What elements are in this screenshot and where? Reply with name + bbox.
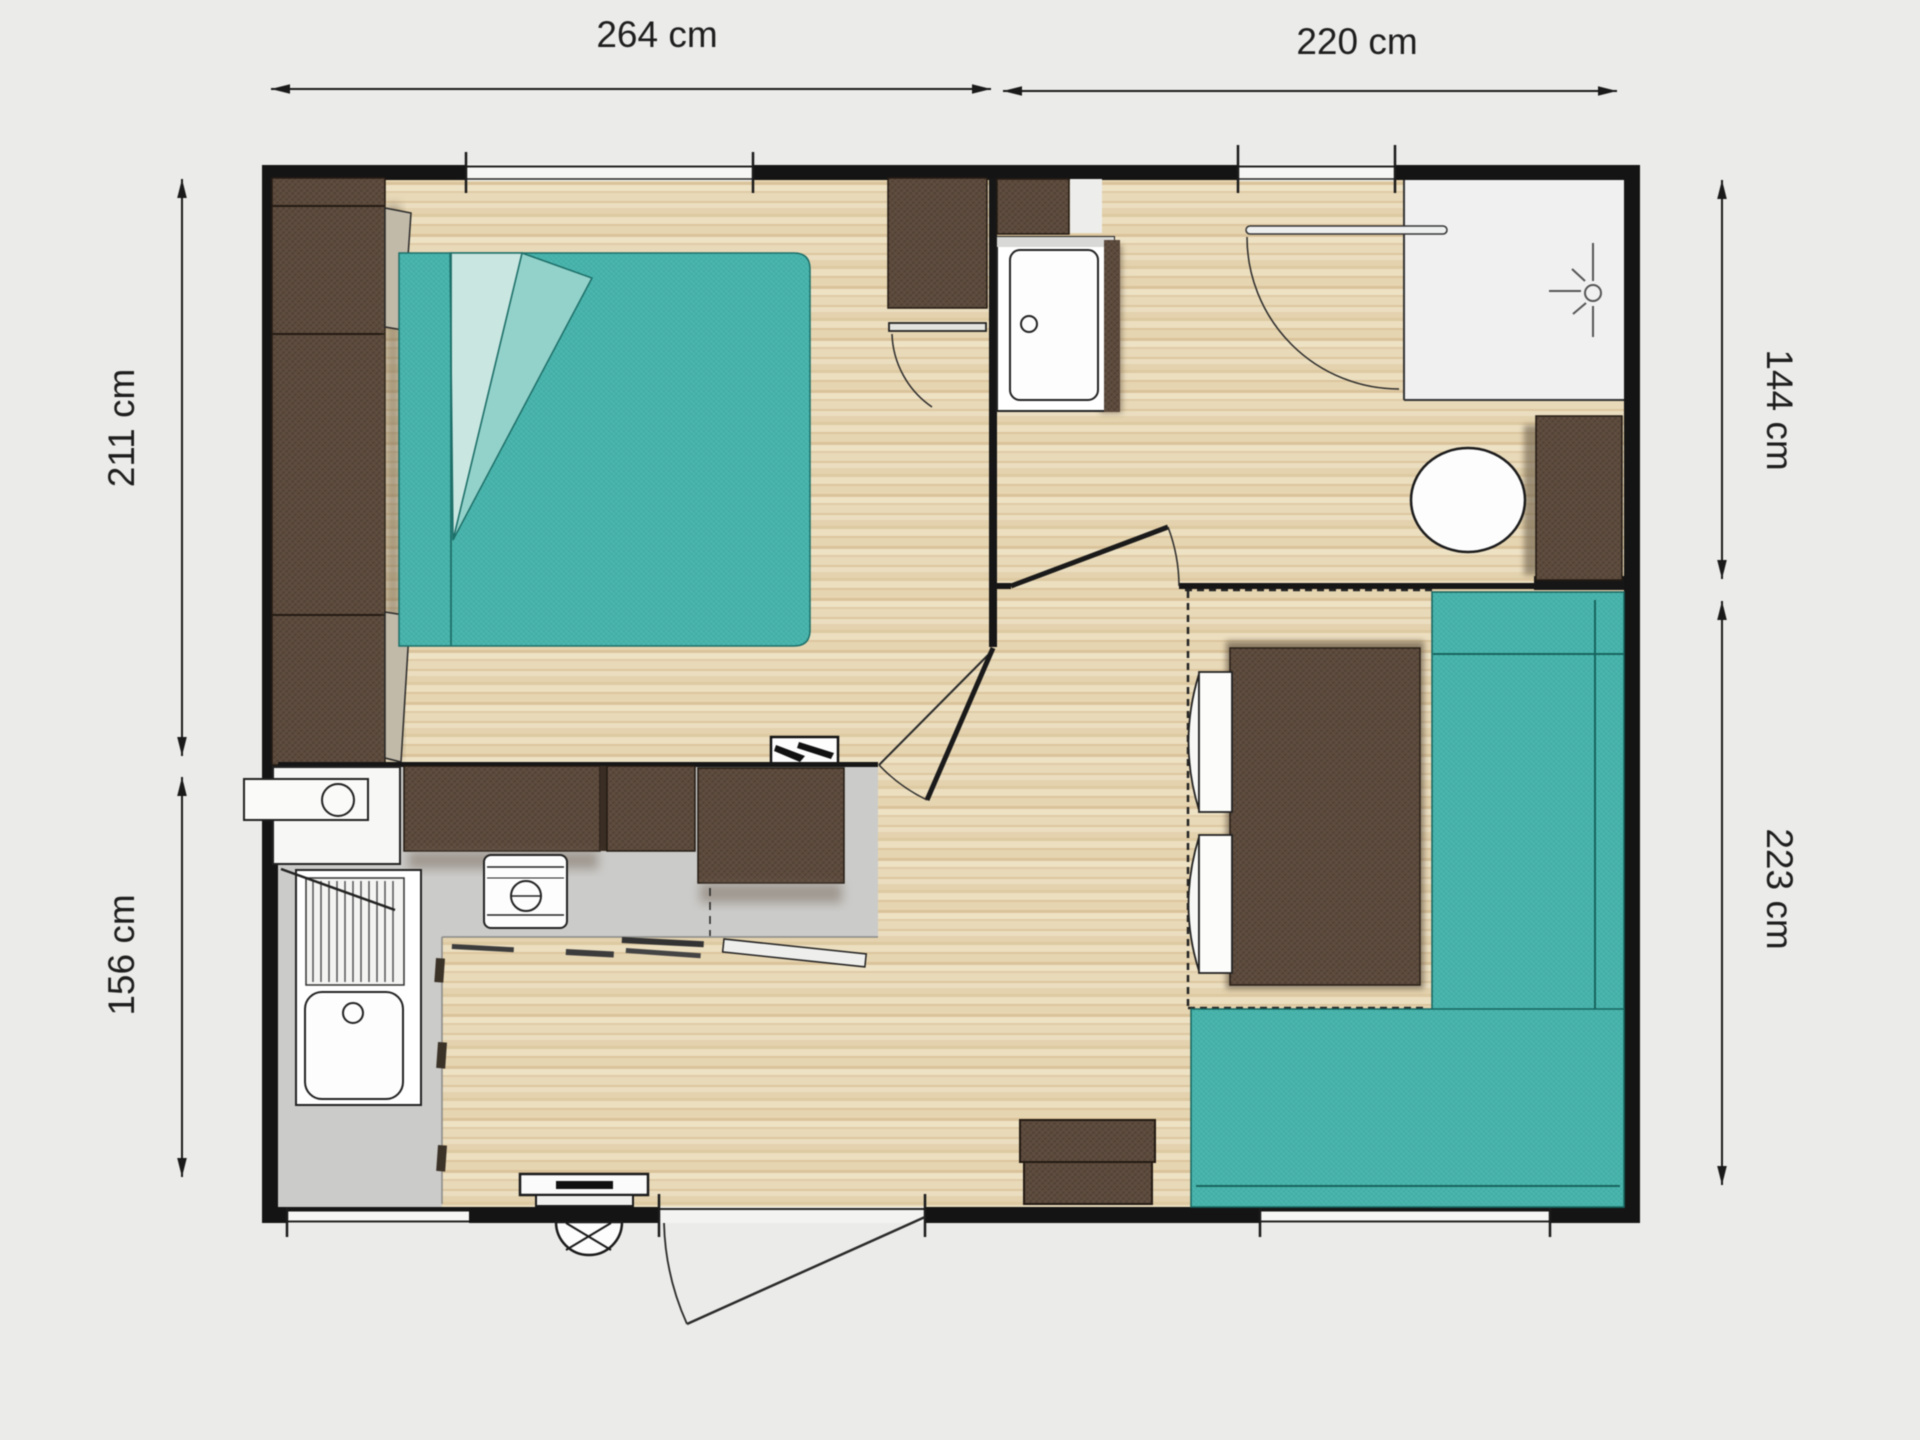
- svg-text:264 cm: 264 cm: [596, 14, 717, 55]
- svg-text:223 cm: 223 cm: [1759, 828, 1800, 949]
- svg-text:156 cm: 156 cm: [101, 894, 142, 1015]
- svg-text:144 cm: 144 cm: [1759, 349, 1800, 470]
- svg-text:211 cm: 211 cm: [101, 369, 142, 488]
- svg-text:220 cm: 220 cm: [1296, 21, 1417, 62]
